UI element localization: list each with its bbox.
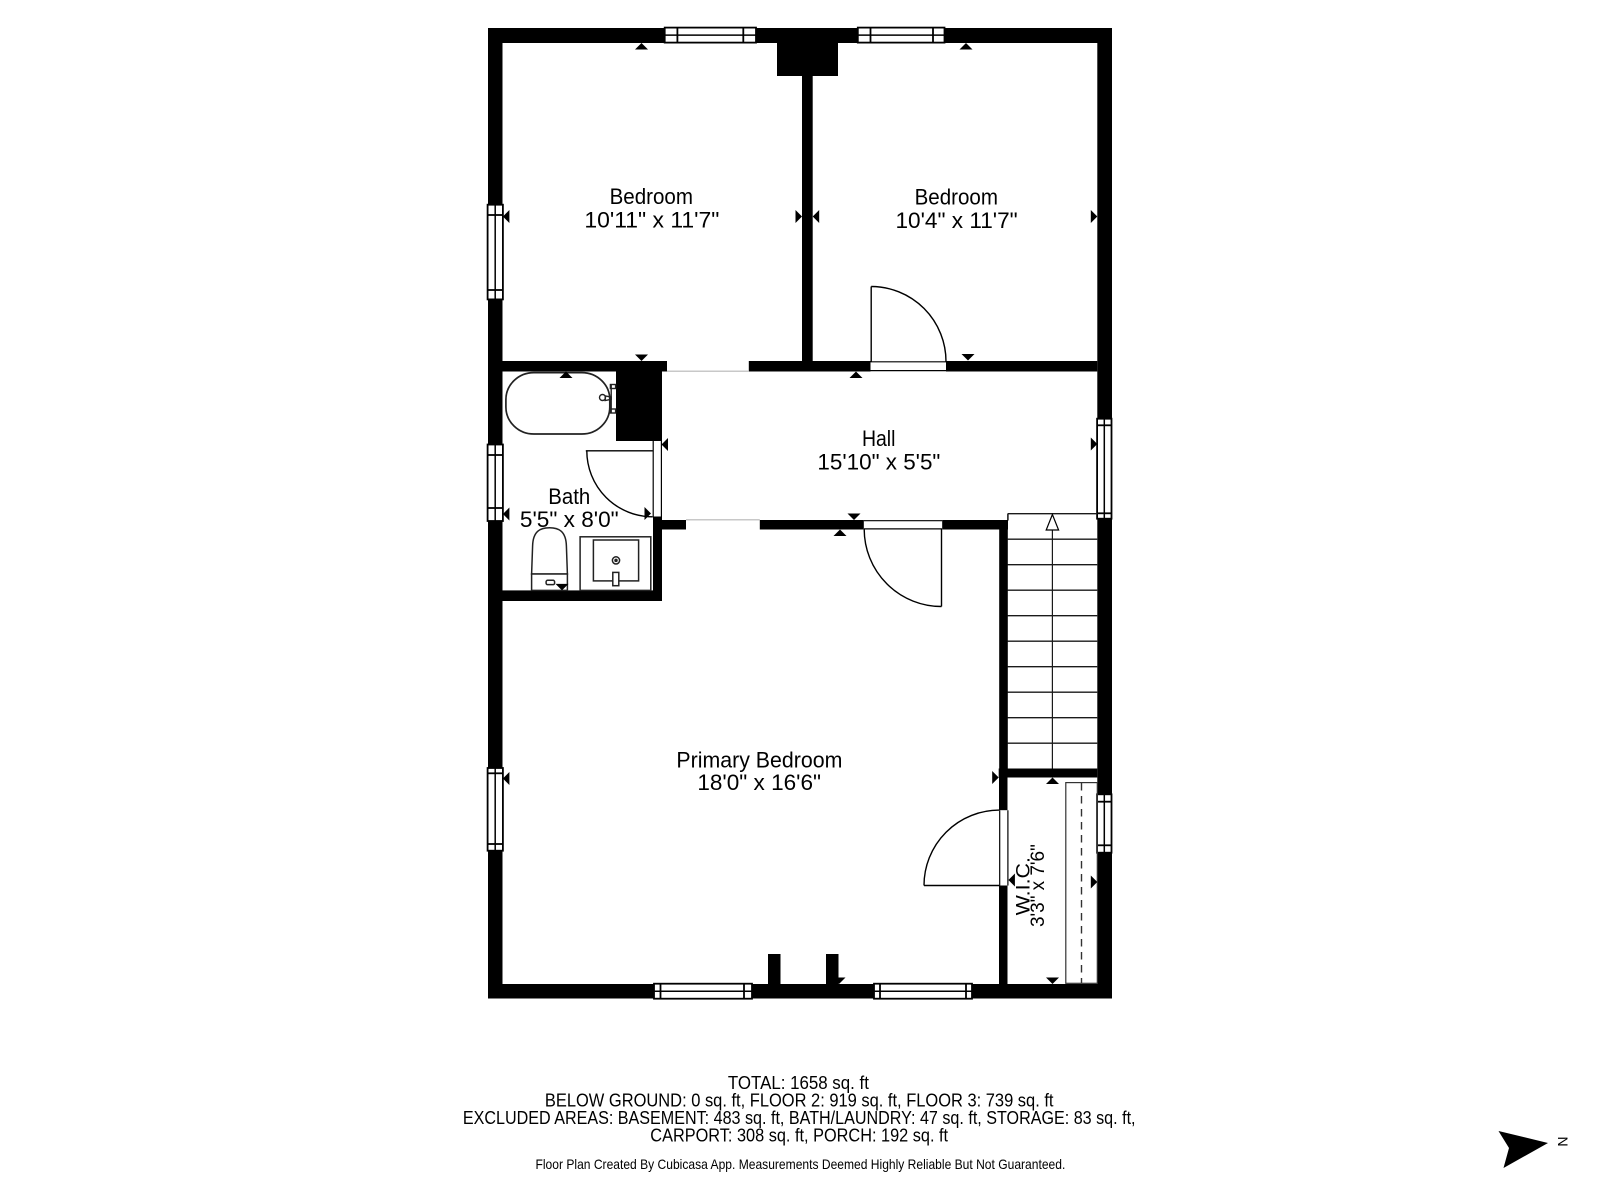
svg-text:N: N (1555, 1136, 1571, 1146)
svg-text:15'10" x 5'5": 15'10" x 5'5" (817, 449, 940, 474)
svg-text:Bedroom: Bedroom (915, 184, 998, 209)
svg-text:Primary Bedroom: Primary Bedroom (676, 748, 842, 773)
svg-text:Bedroom: Bedroom (610, 184, 693, 209)
svg-text:18'0" x 16'6": 18'0" x 16'6" (697, 770, 821, 795)
svg-text:3'3" x 7'6": 3'3" x 7'6" (1028, 844, 1049, 927)
svg-text:Bath: Bath (548, 484, 590, 509)
svg-text:CARPORT: 308 sq. ft, PORCH: 19: CARPORT: 308 sq. ft, PORCH: 192 sq. ft (650, 1126, 948, 1146)
svg-text:10'11" x 11'7": 10'11" x 11'7" (584, 208, 719, 233)
svg-text:5'5" x 8'0": 5'5" x 8'0" (520, 507, 619, 532)
svg-text:10'4" x 11'7": 10'4" x 11'7" (896, 208, 1018, 233)
svg-text:Hall: Hall (862, 426, 896, 451)
svg-text:Floor Plan Created By Cubicasa: Floor Plan Created By Cubicasa App. Meas… (536, 1156, 1066, 1172)
